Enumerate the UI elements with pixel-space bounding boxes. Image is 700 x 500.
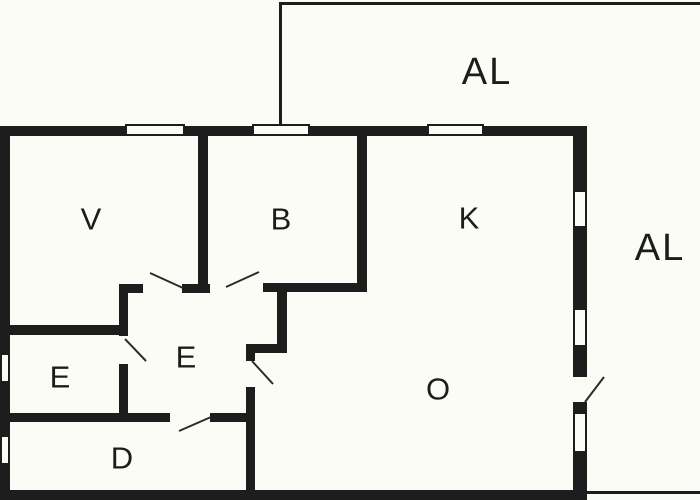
door-swing-v (150, 273, 183, 288)
room-label-d: D (111, 443, 135, 474)
room-label-v: V (81, 204, 104, 235)
room-label-b: B (271, 204, 294, 235)
wall-b-k-divider (357, 136, 367, 287)
floor-plan: AL AL V B K E E D O (0, 0, 700, 500)
wall-hall-top-stub (128, 284, 143, 293)
room-label-balcony-top: AL (462, 53, 512, 91)
balcony-left-wall-line (279, 2, 282, 127)
wall-d-top-a (0, 413, 170, 422)
wall-small-e-top (0, 325, 128, 335)
door-swing-o (252, 361, 273, 384)
room-label-hall-e: E (176, 342, 199, 373)
window-right-o-2 (573, 412, 587, 453)
door-swing-b (226, 272, 259, 287)
window-room-d (0, 435, 10, 465)
wall-hall-left-a (119, 284, 128, 336)
window-right-k (573, 190, 587, 228)
window-small-e (0, 353, 10, 383)
room-label-small-e: E (50, 362, 73, 393)
window-room-v (125, 124, 185, 136)
balcony-top-edge-line (279, 2, 700, 5)
room-label-balcony-right: AL (635, 229, 685, 267)
wall-d-top-b (210, 413, 248, 422)
room-label-o: O (426, 374, 452, 405)
window-right-o-1 (573, 308, 587, 347)
door-swing-small-e (125, 339, 146, 361)
wall-hall-right-upper (277, 283, 287, 353)
window-room-k (427, 124, 484, 136)
door-swing-balcony (585, 377, 604, 402)
room-label-k: K (459, 203, 482, 234)
window-room-b (252, 124, 310, 136)
wall-v-b-divider (198, 136, 208, 287)
exterior-wall-bottom (0, 490, 587, 500)
door-swing-d (179, 417, 211, 431)
door-swing-overlay (0, 0, 700, 500)
wall-hall-right-a (246, 344, 255, 361)
balcony-bottom-edge-line (587, 491, 700, 494)
wall-hall-top-mid (182, 284, 210, 293)
door-opening-balcony (573, 377, 587, 402)
wall-d-o-divider (246, 387, 255, 490)
